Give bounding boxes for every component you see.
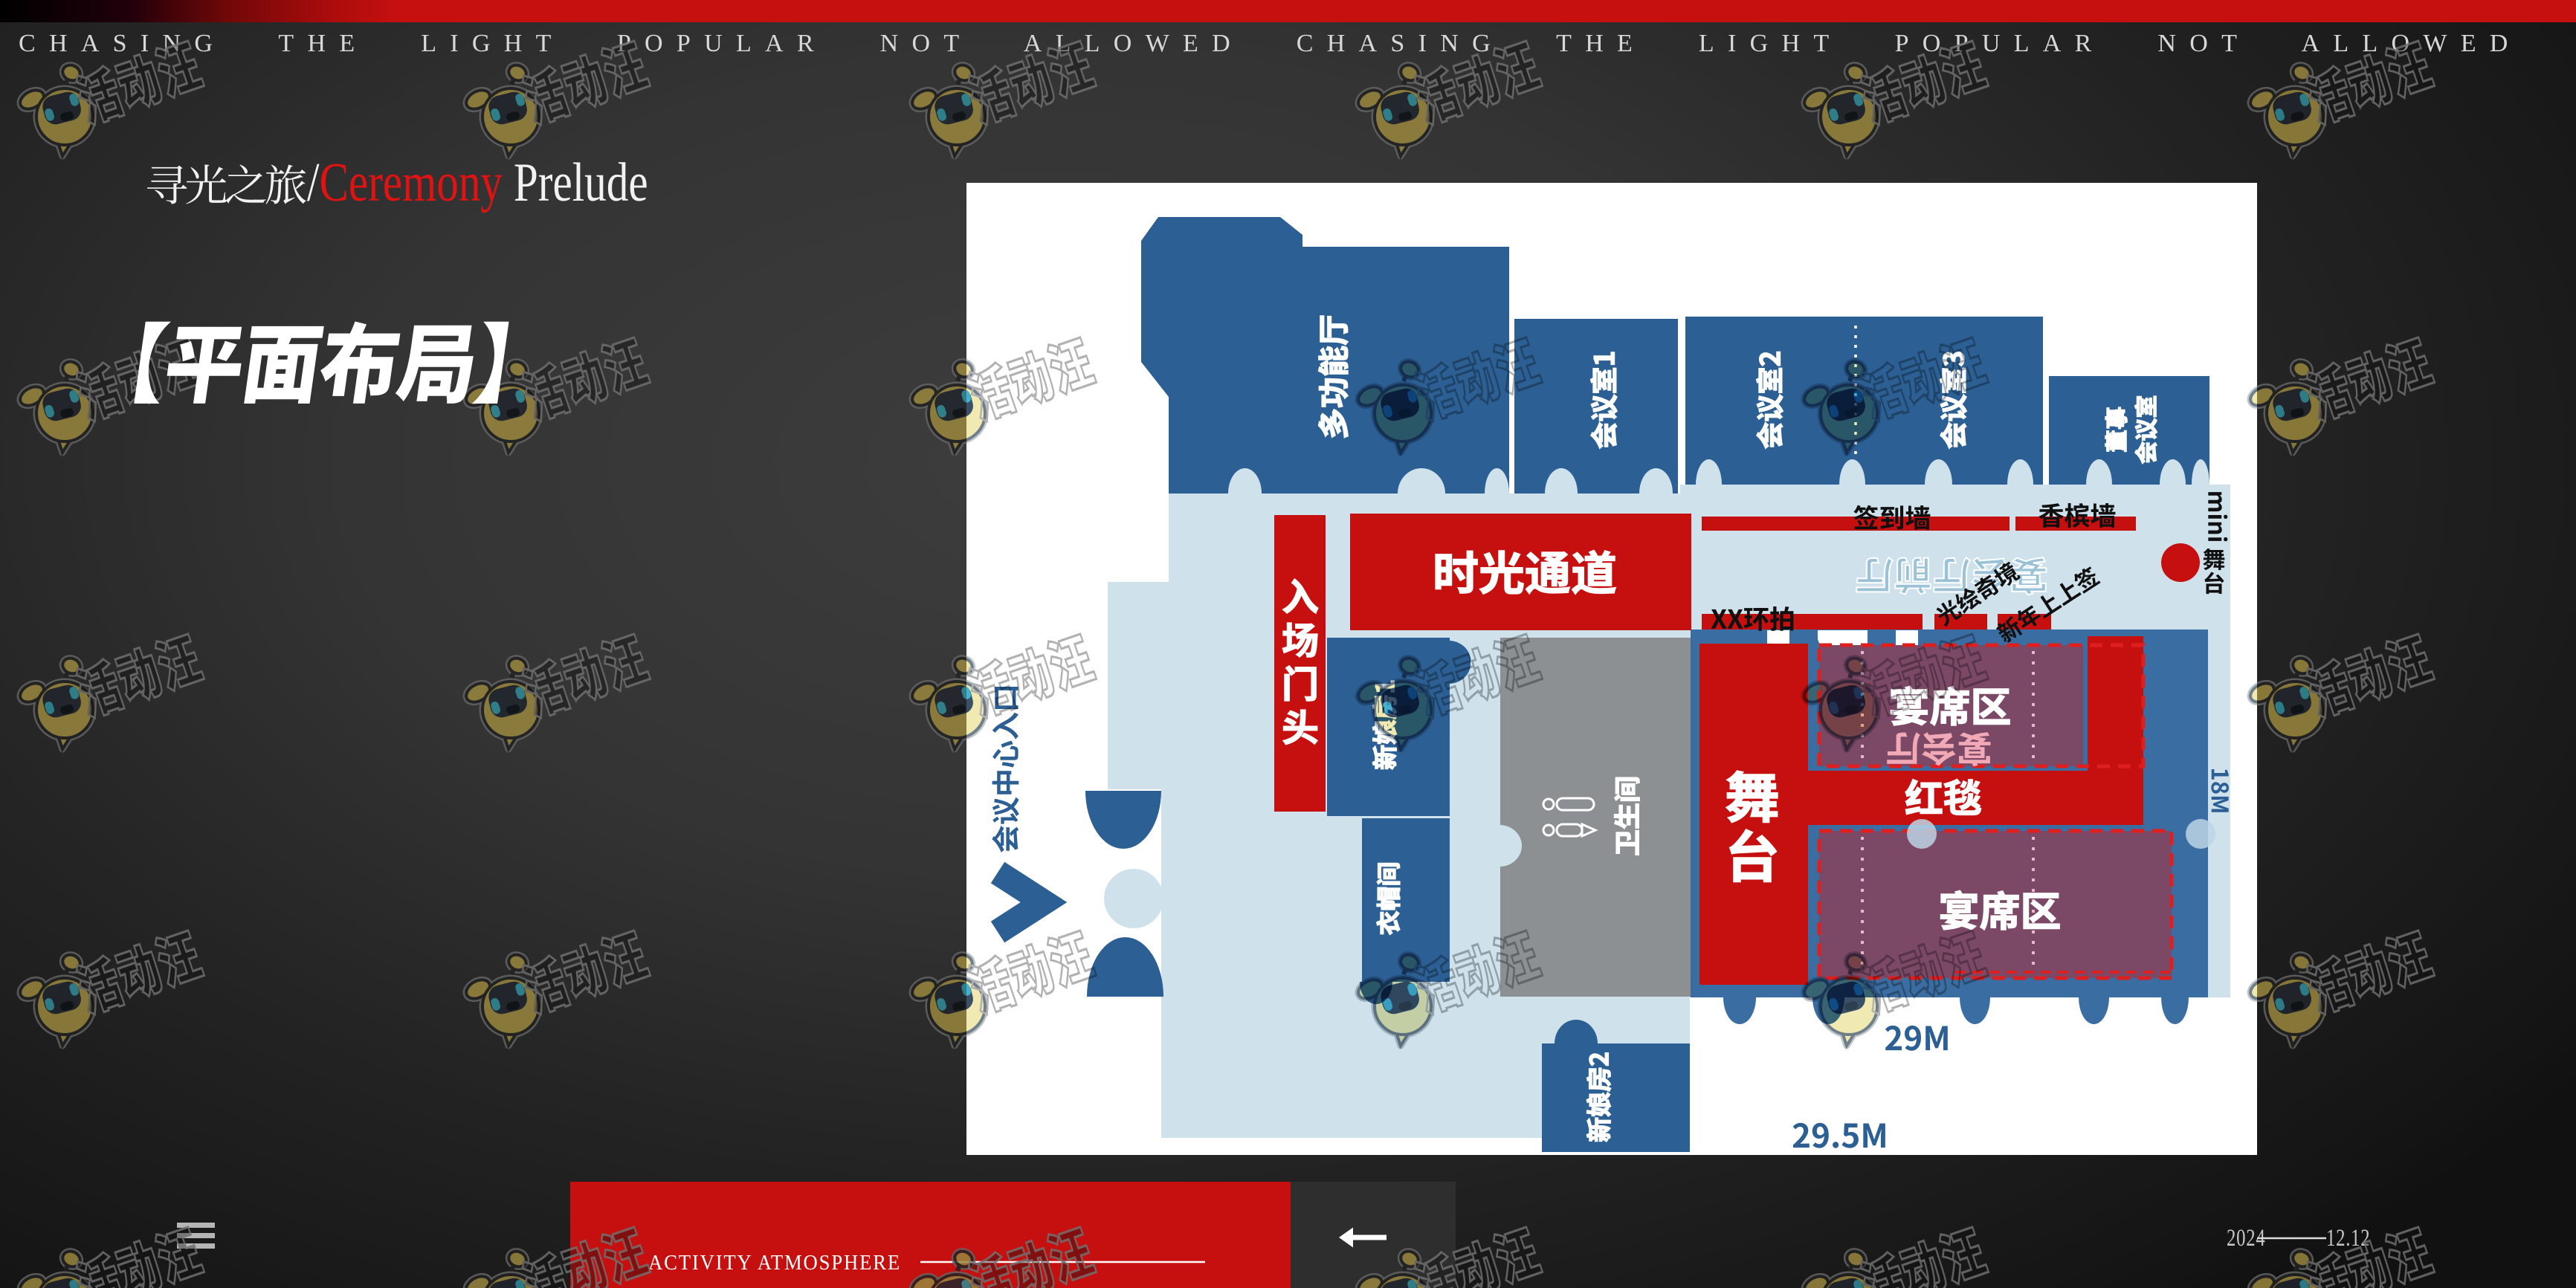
svg-text:/Ceremony Prelude: /Ceremony Prelude: [307, 152, 648, 213]
